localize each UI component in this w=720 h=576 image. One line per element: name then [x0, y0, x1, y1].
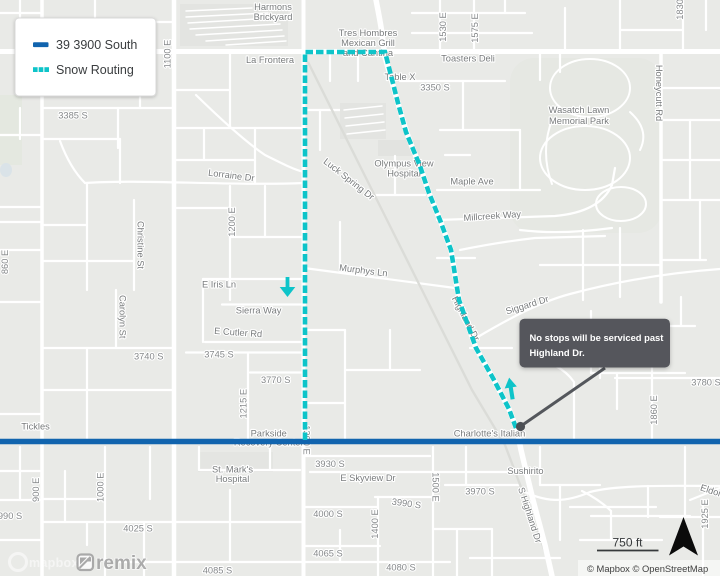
svg-text:1000 E: 1000 E: [96, 473, 106, 502]
svg-text:Sushirito: Sushirito: [507, 466, 543, 476]
svg-text:Honeycutt Rd: Honeycutt Rd: [654, 65, 664, 121]
svg-text:1530 E: 1530 E: [438, 12, 448, 41]
svg-text:1500 E: 1500 E: [431, 472, 441, 501]
svg-text:Wasatch Lawn: Wasatch Lawn: [549, 105, 610, 115]
svg-text:Olympus View: Olympus View: [374, 159, 434, 169]
svg-text:E Skyview Dr: E Skyview Dr: [340, 473, 395, 483]
svg-text:Tickles: Tickles: [21, 422, 50, 432]
svg-text:3770 S: 3770 S: [261, 375, 290, 385]
svg-text:Highland Dr.: Highland Dr.: [530, 347, 585, 358]
svg-text:remix: remix: [96, 553, 147, 574]
svg-text:4065 S: 4065 S: [313, 549, 342, 559]
svg-text:1925 E: 1925 E: [700, 499, 710, 528]
svg-text:3780 S: 3780 S: [691, 378, 720, 388]
svg-text:3930 S: 3930 S: [315, 459, 344, 469]
svg-text:Hospital: Hospital: [216, 474, 250, 484]
svg-text:Harmons: Harmons: [254, 2, 292, 12]
svg-text:1575 E: 1575 E: [470, 13, 480, 42]
svg-text:No stops will be serviced past: No stops will be serviced past: [530, 332, 664, 343]
svg-text:4085 S: 4085 S: [203, 566, 232, 576]
svg-text:1200 E: 1200 E: [227, 207, 237, 236]
svg-text:3745 S: 3745 S: [204, 350, 233, 360]
svg-text:Snow Routing: Snow Routing: [56, 63, 134, 77]
svg-text:990 S: 990 S: [0, 511, 22, 521]
svg-text:La Frontera: La Frontera: [246, 55, 295, 65]
svg-text:900 E: 900 E: [31, 478, 41, 502]
svg-text:Mexican Grill: Mexican Grill: [341, 38, 395, 48]
svg-text:4000 S: 4000 S: [313, 509, 342, 519]
svg-text:3970 S: 3970 S: [465, 487, 494, 497]
svg-text:1400 E: 1400 E: [370, 509, 380, 538]
svg-text:Tres Hombres: Tres Hombres: [339, 28, 398, 38]
svg-text:1830 E: 1830 E: [675, 0, 685, 20]
svg-text:1100 E: 1100 E: [163, 40, 173, 69]
svg-text:750 ft: 750 ft: [612, 536, 643, 550]
svg-text:St. Mark's: St. Mark's: [212, 465, 253, 475]
svg-text:Christine St: Christine St: [136, 221, 146, 269]
svg-text:mapbox: mapbox: [29, 556, 79, 570]
svg-text:3350 S: 3350 S: [420, 83, 449, 93]
svg-text:4025 S: 4025 S: [123, 524, 152, 534]
svg-text:3740 S: 3740 S: [134, 352, 163, 362]
svg-text:Sierra Way: Sierra Way: [236, 305, 282, 315]
svg-text:860 E: 860 E: [0, 250, 10, 274]
svg-text:Toasters Deli: Toasters Deli: [441, 54, 495, 64]
svg-text:Carolyn St: Carolyn St: [118, 295, 128, 339]
svg-text:E Iris Ln: E Iris Ln: [202, 279, 236, 289]
svg-text:1215 E: 1215 E: [239, 389, 249, 418]
svg-text:Brickyard: Brickyard: [254, 12, 293, 22]
svg-text:Hospital: Hospital: [387, 169, 421, 179]
svg-text:Memorial Park: Memorial Park: [549, 116, 609, 126]
svg-text:4080 S: 4080 S: [386, 562, 415, 572]
svg-text:1860 E: 1860 E: [649, 395, 659, 424]
svg-text:© Mapbox © OpenStreetMap: © Mapbox © OpenStreetMap: [587, 563, 708, 574]
svg-text:Charlotte's Italian: Charlotte's Italian: [454, 429, 526, 439]
svg-text:3385 S: 3385 S: [58, 111, 87, 121]
svg-text:Maple Ave: Maple Ave: [450, 177, 493, 187]
svg-text:39 3900 South: 39 3900 South: [56, 38, 137, 52]
